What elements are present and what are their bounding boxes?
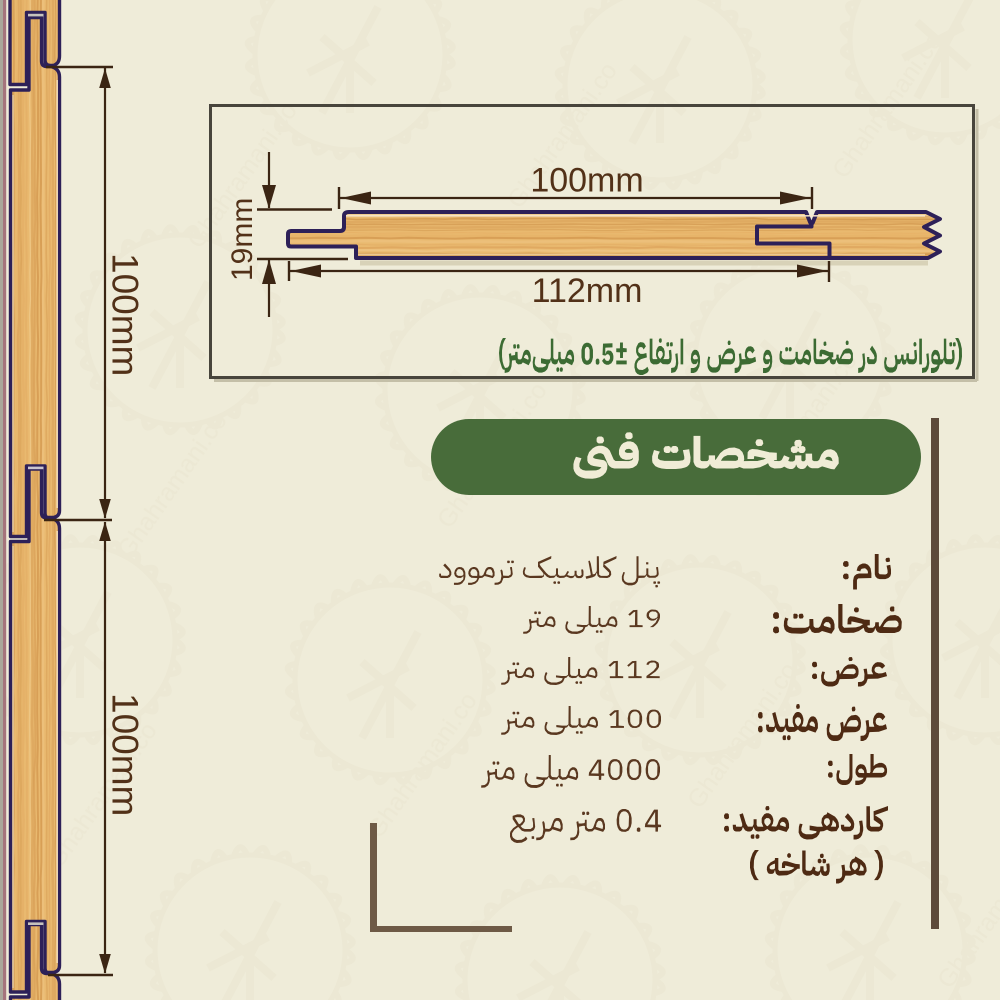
svg-text:100mm: 100mm xyxy=(530,162,643,200)
svg-text:19mm: 19mm xyxy=(226,198,259,281)
svg-text:112mm: 112mm xyxy=(532,272,643,310)
